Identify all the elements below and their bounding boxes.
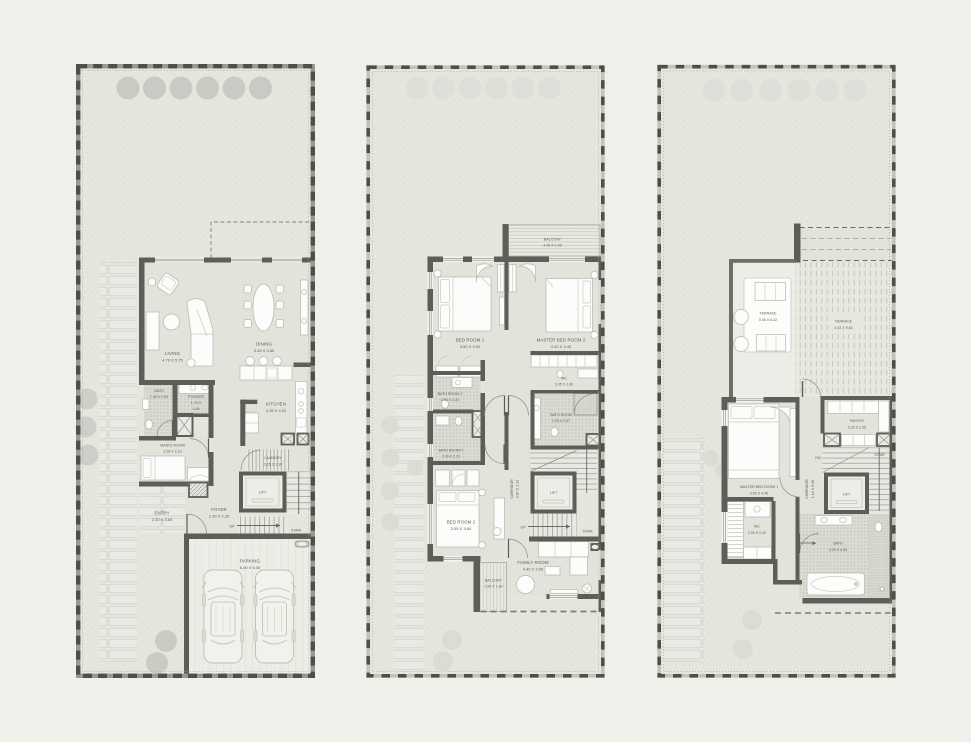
svg-text:3.25 X 2.67: 3.25 X 2.67 (552, 419, 570, 423)
svg-text:2.00 X 2.42: 2.00 X 2.42 (748, 531, 766, 535)
svg-text:WC: WC (754, 525, 760, 529)
svg-text:TERRACE: TERRACE (835, 320, 853, 324)
svg-text:ENTRY: ENTRY (154, 511, 169, 516)
svg-text:KITCHEN: KITCHEN (266, 402, 286, 407)
svg-text:LIFT: LIFT (259, 491, 267, 495)
svg-text:3.35 X 4.86: 3.35 X 4.86 (254, 348, 275, 353)
svg-text:3.50 X 4.00: 3.50 X 4.00 (460, 344, 481, 349)
svg-text:DN: DN (815, 456, 821, 460)
svg-text:MASTER BED ROOM 1: MASTER BED ROOM 1 (740, 485, 779, 489)
svg-text:3.50 X 4.45: 3.50 X 4.45 (750, 492, 768, 496)
svg-text:4.45 X 1.48: 4.45 X 1.48 (543, 244, 561, 248)
svg-text:UP: UP (521, 526, 527, 530)
svg-text:3.25 X 2.25: 3.25 X 2.25 (848, 426, 866, 430)
svg-text:STAIR: STAIR (582, 530, 593, 534)
svg-text:BED ROOM 1: BED ROOM 1 (456, 338, 485, 343)
svg-text:1.48 X 2.63: 1.48 X 2.63 (150, 395, 168, 399)
svg-text:WC: WC (561, 377, 567, 381)
svg-text:2.39 X 2.22: 2.39 X 2.22 (442, 455, 460, 459)
svg-text:BATH: BATH (154, 389, 164, 393)
svg-text:4.40 X 2.99: 4.40 X 2.99 (523, 567, 544, 572)
svg-text:BATH ROOM: BATH ROOM (550, 413, 572, 417)
svg-text:2.20 X 3.60: 2.20 X 3.60 (152, 517, 173, 522)
svg-text:3.26 X 2.13: 3.26 X 2.13 (163, 450, 181, 454)
svg-text:BALCONY: BALCONY (544, 238, 562, 242)
svg-text:STAIR: STAIR (291, 529, 302, 533)
svg-text:DINING: DINING (256, 342, 272, 347)
svg-text:FOYER: FOYER (211, 507, 227, 512)
svg-text:3.35 X 1.90: 3.35 X 1.90 (555, 383, 573, 387)
svg-text:2.92 X 2.22: 2.92 X 2.22 (441, 398, 459, 402)
svg-text:BALCONY: BALCONY (485, 579, 503, 583)
svg-text:BED ROOM 2: BED ROOM 2 (447, 520, 476, 525)
svg-text:1.10 X 5.08: 1.10 X 5.08 (811, 480, 815, 498)
svg-text:MASTER BED ROOM 2: MASTER BED ROOM 2 (537, 338, 586, 343)
svg-text:4.79 X 5.75: 4.79 X 5.75 (162, 358, 183, 363)
svg-text:3.35 X 4.02: 3.35 X 4.02 (266, 408, 287, 413)
svg-text:LIFT: LIFT (843, 493, 851, 497)
svg-text:BATH ROOM-1: BATH ROOM-1 (438, 392, 463, 396)
svg-text:4.43 X 9.82: 4.43 X 9.82 (834, 326, 852, 330)
svg-text:PARKING: PARKING (240, 559, 261, 564)
svg-text:3.35 X 6.42: 3.35 X 6.42 (759, 318, 777, 322)
svg-text:FAMILY ROOM: FAMILY ROOM (517, 560, 548, 565)
svg-text:6.06 X 6.00: 6.06 X 6.00 (240, 565, 261, 570)
svg-text:3.55 X 3.60: 3.55 X 3.60 (451, 526, 472, 531)
svg-text:4.40 X 4.49: 4.40 X 4.49 (551, 344, 572, 349)
svg-text:CORRIDOR: CORRIDOR (805, 479, 809, 499)
svg-text:BATH: BATH (833, 542, 843, 546)
svg-text:UP: UP (230, 525, 236, 529)
svg-text:LIVING: LIVING (165, 351, 180, 356)
svg-text:3.25 X 1.10: 3.25 X 1.10 (264, 463, 282, 467)
svg-text:MAID'S ROOM: MAID'S ROOM (160, 444, 184, 448)
svg-text:CORRIDOR: CORRIDOR (510, 479, 514, 499)
svg-text:1.90 X 1.80: 1.90 X 1.80 (484, 585, 502, 589)
svg-text:BATH ROOM-2: BATH ROOM-2 (439, 449, 464, 453)
svg-text:TERRACE: TERRACE (759, 312, 777, 316)
svg-text:1.75 X: 1.75 X (191, 401, 202, 405)
svg-text:1.48: 1.48 (193, 407, 200, 411)
svg-text:LAUNDRY: LAUNDRY (264, 456, 282, 460)
svg-text:POWDER: POWDER (188, 395, 205, 399)
svg-text:3.87 X 1.13: 3.87 X 1.13 (516, 480, 520, 498)
svg-text:STAIR: STAIR (874, 453, 885, 457)
svg-text:PANTRY: PANTRY (850, 419, 865, 423)
svg-text:4.25 X 4.60: 4.25 X 4.60 (829, 548, 847, 552)
svg-text:2.30 X 2.32: 2.30 X 2.32 (209, 514, 230, 519)
svg-text:LIFT: LIFT (550, 491, 558, 495)
